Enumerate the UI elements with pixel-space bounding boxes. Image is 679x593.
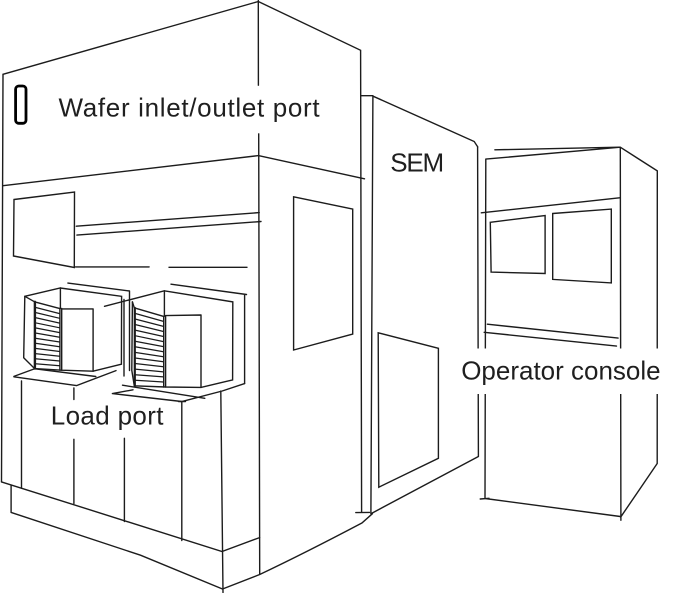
svg-text:SEM: SEM (390, 148, 443, 178)
svg-text:Wafer inlet/outlet port: Wafer inlet/outlet port (59, 92, 321, 122)
svg-text:Operator console: Operator console (461, 355, 660, 385)
svg-text:Load port: Load port (51, 401, 164, 431)
